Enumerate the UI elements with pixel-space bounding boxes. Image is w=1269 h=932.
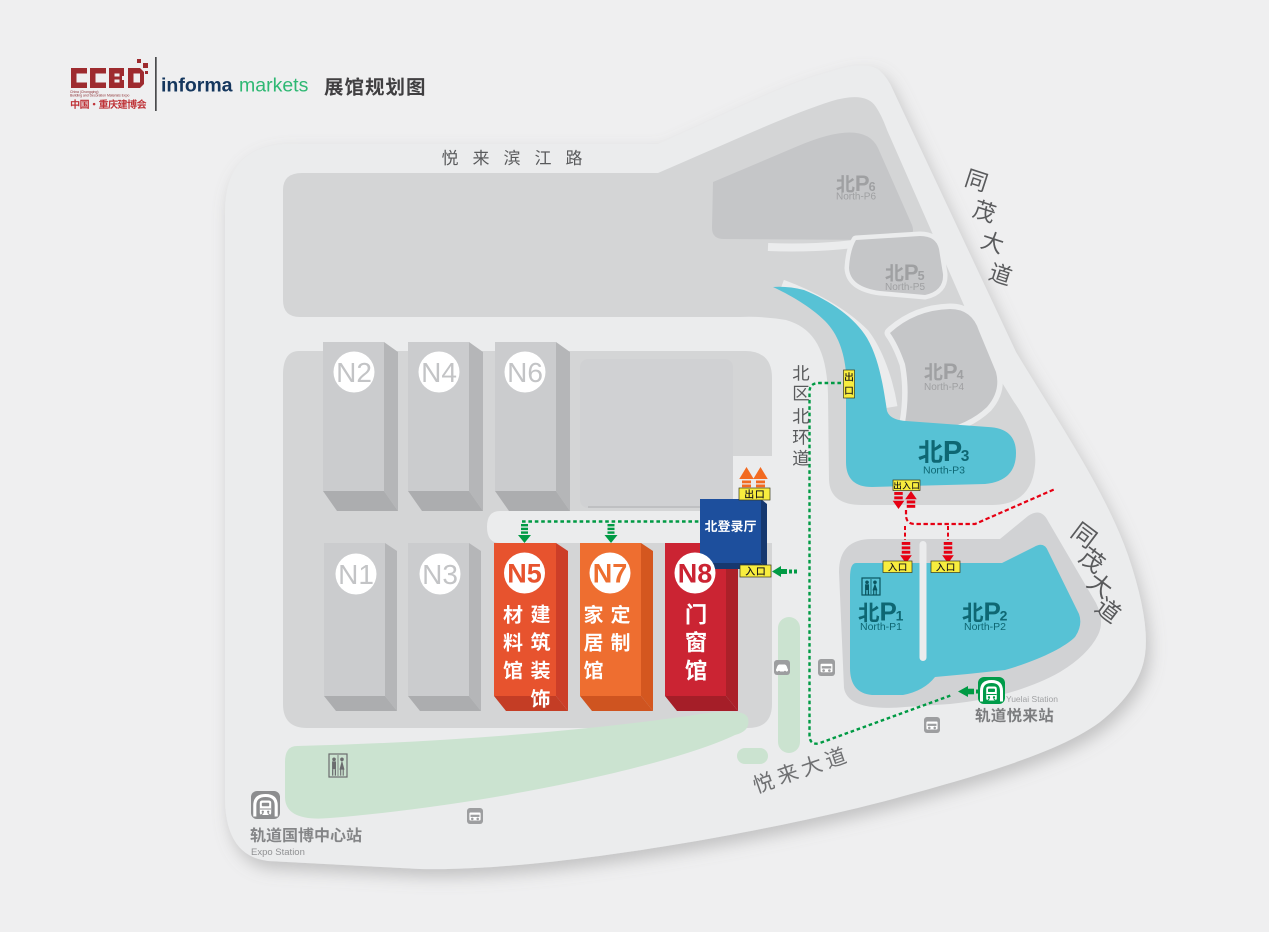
svg-text:North-P1: North-P1	[860, 621, 902, 633]
svg-text:4: 4	[957, 368, 964, 382]
svg-text:North-P6: North-P6	[836, 192, 876, 203]
svg-text:N4: N4	[421, 357, 457, 388]
svg-text:North-P4: North-P4	[924, 382, 964, 393]
svg-text:N3: N3	[422, 559, 458, 590]
svg-text:N1: N1	[338, 559, 374, 590]
svg-text:P: P	[943, 436, 962, 468]
svg-text:North-P3: North-P3	[923, 465, 965, 477]
svg-text:North-P5: North-P5	[885, 282, 925, 293]
svg-text:Expo Station: Expo Station	[251, 847, 305, 858]
svg-text:N8: N8	[678, 558, 713, 588]
svg-text:Yuelai Station: Yuelai Station	[1006, 694, 1058, 704]
svg-text:P: P	[943, 359, 958, 384]
svg-text:North-P2: North-P2	[964, 621, 1006, 633]
svg-text:N2: N2	[336, 357, 372, 388]
svg-text:markets: markets	[239, 75, 309, 97]
svg-text:N5: N5	[507, 558, 542, 588]
svg-text:N6: N6	[507, 357, 543, 388]
svg-text:N7: N7	[593, 558, 628, 588]
svg-text:5: 5	[918, 269, 925, 283]
svg-text:3: 3	[961, 448, 970, 465]
svg-text:informa: informa	[161, 75, 233, 97]
svg-text:Building and Decoration Materi: Building and Decoration Materials Expo	[70, 93, 129, 97]
